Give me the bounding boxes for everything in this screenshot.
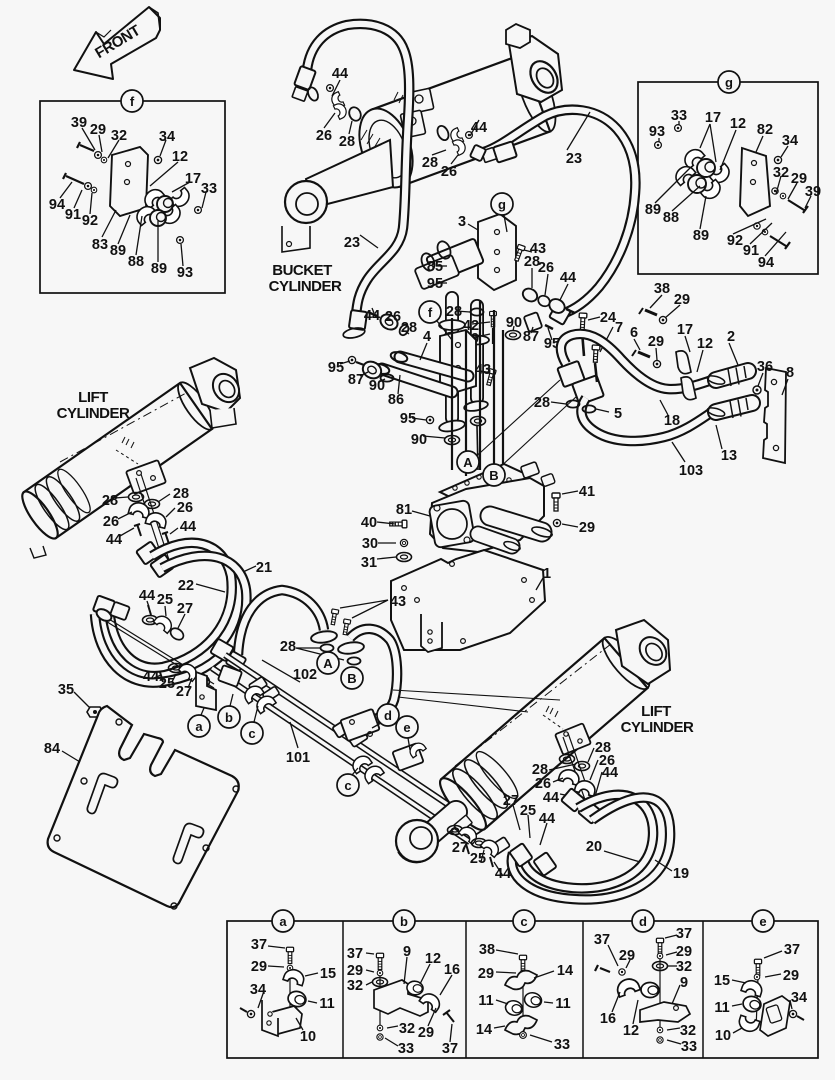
svg-text:29: 29 [674, 292, 690, 308]
svg-text:25: 25 [157, 592, 173, 608]
svg-text:13: 13 [721, 448, 737, 464]
svg-text:91: 91 [743, 243, 759, 259]
svg-text:14: 14 [557, 963, 573, 979]
svg-text:103: 103 [679, 463, 703, 479]
svg-text:87: 87 [523, 329, 539, 345]
svg-text:37: 37 [442, 1041, 458, 1057]
svg-text:31: 31 [361, 555, 377, 571]
svg-text:44: 44 [543, 790, 559, 806]
svg-text:19: 19 [673, 866, 689, 882]
svg-text:89: 89 [151, 261, 167, 277]
svg-text:26: 26 [385, 309, 401, 325]
svg-text:84: 84 [44, 741, 60, 757]
svg-text:25: 25 [159, 676, 175, 692]
svg-text:95: 95 [400, 411, 416, 427]
svg-text:e: e [759, 914, 766, 929]
svg-text:B: B [489, 468, 498, 483]
svg-text:34: 34 [791, 990, 807, 1006]
svg-text:85: 85 [427, 259, 443, 275]
svg-text:101: 101 [286, 750, 310, 766]
svg-text:20: 20 [586, 839, 602, 855]
svg-text:25: 25 [520, 803, 536, 819]
svg-text:3: 3 [458, 214, 466, 230]
svg-text:12: 12 [425, 951, 441, 967]
svg-text:29: 29 [478, 966, 494, 982]
svg-text:30: 30 [362, 536, 378, 552]
svg-text:CYLINDER: CYLINDER [269, 278, 342, 295]
svg-text:83: 83 [92, 237, 108, 253]
svg-text:29: 29 [251, 959, 267, 975]
svg-text:34: 34 [250, 982, 266, 998]
svg-text:11: 11 [555, 996, 570, 1012]
svg-text:32: 32 [399, 1021, 415, 1037]
svg-text:B: B [347, 671, 356, 686]
svg-text:c: c [520, 914, 527, 929]
svg-text:11: 11 [319, 996, 334, 1012]
svg-text:41: 41 [579, 484, 595, 500]
svg-text:89: 89 [110, 243, 126, 259]
svg-text:8: 8 [786, 365, 794, 381]
svg-text:88: 88 [663, 210, 679, 226]
svg-text:44: 44 [471, 120, 487, 136]
svg-text:c: c [248, 726, 255, 741]
svg-text:28: 28 [102, 493, 118, 509]
svg-text:6: 6 [630, 325, 638, 341]
svg-text:43: 43 [475, 362, 491, 378]
svg-text:d: d [639, 914, 647, 929]
svg-text:95: 95 [427, 276, 443, 292]
svg-text:44: 44 [143, 669, 159, 685]
svg-text:29: 29 [648, 334, 664, 350]
svg-text:11: 11 [714, 1000, 729, 1016]
svg-text:CYLINDER: CYLINDER [57, 405, 130, 422]
svg-text:92: 92 [727, 233, 743, 249]
svg-text:17: 17 [185, 171, 201, 187]
svg-text:16: 16 [444, 962, 460, 978]
svg-text:25: 25 [470, 851, 486, 867]
svg-text:17: 17 [705, 110, 721, 126]
svg-text:33: 33 [398, 1041, 414, 1057]
svg-text:38: 38 [654, 281, 670, 297]
svg-text:44: 44 [139, 588, 155, 604]
svg-text:e: e [403, 720, 410, 735]
svg-text:27: 27 [176, 684, 192, 700]
svg-text:37: 37 [251, 937, 267, 953]
svg-text:9: 9 [403, 944, 411, 960]
svg-text:26: 26 [538, 260, 554, 276]
svg-text:86: 86 [388, 392, 404, 408]
svg-text:21: 21 [256, 560, 272, 576]
svg-text:28: 28 [401, 320, 417, 336]
svg-text:28: 28 [339, 134, 355, 150]
svg-text:91: 91 [65, 207, 81, 223]
svg-text:36: 36 [757, 359, 773, 375]
svg-text:87: 87 [348, 372, 364, 388]
svg-text:33: 33 [681, 1039, 697, 1055]
svg-text:32: 32 [680, 1023, 696, 1039]
svg-text:29: 29 [418, 1025, 434, 1041]
svg-text:43: 43 [390, 594, 406, 610]
svg-text:b: b [400, 914, 408, 929]
svg-text:29: 29 [347, 963, 363, 979]
svg-text:A: A [463, 455, 473, 470]
svg-text:12: 12 [172, 149, 188, 165]
svg-text:g: g [725, 75, 733, 90]
svg-text:22: 22 [178, 578, 194, 594]
svg-text:40: 40 [361, 515, 377, 531]
svg-text:28: 28 [446, 304, 462, 320]
svg-text:5: 5 [614, 406, 622, 422]
svg-text:32: 32 [347, 978, 363, 994]
svg-text:10: 10 [715, 1028, 731, 1044]
svg-text:29: 29 [579, 520, 595, 536]
svg-text:27: 27 [503, 793, 519, 809]
svg-text:c: c [344, 778, 351, 793]
svg-text:BUCKET: BUCKET [272, 262, 332, 279]
svg-text:37: 37 [347, 946, 363, 962]
svg-text:90: 90 [369, 378, 385, 394]
svg-text:15: 15 [320, 966, 336, 982]
svg-text:g: g [498, 197, 506, 212]
svg-text:89: 89 [693, 228, 709, 244]
svg-text:34: 34 [159, 129, 175, 145]
svg-text:f: f [428, 305, 433, 320]
svg-text:44: 44 [364, 308, 380, 324]
svg-text:93: 93 [649, 124, 665, 140]
svg-text:12: 12 [730, 116, 746, 132]
svg-text:1: 1 [543, 566, 551, 582]
svg-text:33: 33 [201, 181, 217, 197]
svg-text:44: 44 [106, 532, 122, 548]
svg-text:32: 32 [111, 128, 127, 144]
svg-text:10: 10 [300, 1029, 316, 1045]
svg-text:a: a [195, 719, 203, 734]
svg-text:102: 102 [293, 667, 317, 683]
svg-text:94: 94 [758, 255, 774, 271]
svg-text:88: 88 [128, 254, 144, 270]
svg-text:7: 7 [615, 320, 623, 336]
svg-text:44: 44 [602, 765, 618, 781]
svg-text:27: 27 [177, 601, 193, 617]
svg-text:17: 17 [677, 322, 693, 338]
svg-text:37: 37 [784, 942, 800, 958]
svg-text:37: 37 [676, 926, 692, 942]
svg-text:44: 44 [560, 270, 576, 286]
svg-text:14: 14 [476, 1022, 492, 1038]
svg-text:44: 44 [539, 811, 555, 827]
svg-text:90: 90 [411, 432, 427, 448]
svg-text:CYLINDER: CYLINDER [621, 719, 694, 736]
svg-text:9: 9 [680, 975, 688, 991]
svg-text:4: 4 [423, 329, 431, 345]
svg-text:a: a [279, 914, 287, 929]
svg-text:81: 81 [396, 502, 412, 518]
svg-text:92: 92 [82, 213, 98, 229]
svg-text:29: 29 [90, 122, 106, 138]
svg-text:26: 26 [441, 164, 457, 180]
svg-text:24: 24 [600, 310, 616, 326]
svg-text:89: 89 [645, 202, 661, 218]
svg-text:34: 34 [782, 133, 798, 149]
svg-text:A: A [323, 656, 333, 671]
svg-text:44: 44 [180, 519, 196, 535]
svg-text:33: 33 [554, 1037, 570, 1053]
svg-text:35: 35 [58, 682, 74, 698]
svg-text:38: 38 [479, 942, 495, 958]
svg-text:37: 37 [594, 932, 610, 948]
svg-text:29: 29 [783, 968, 799, 984]
svg-text:b: b [225, 710, 233, 725]
svg-text:94: 94 [49, 197, 65, 213]
svg-text:16: 16 [600, 1011, 616, 1027]
svg-text:82: 82 [757, 122, 773, 138]
svg-text:90: 90 [506, 315, 522, 331]
svg-text:d: d [384, 708, 392, 723]
svg-text:LIFT: LIFT [78, 389, 108, 406]
svg-text:39: 39 [805, 184, 821, 200]
svg-text:32: 32 [676, 959, 692, 975]
svg-text:23: 23 [566, 151, 582, 167]
svg-text:28: 28 [422, 155, 438, 171]
svg-text:29: 29 [619, 948, 635, 964]
svg-text:26: 26 [177, 500, 193, 516]
svg-text:95: 95 [328, 360, 344, 376]
svg-text:12: 12 [623, 1023, 639, 1039]
svg-text:39: 39 [71, 115, 87, 131]
svg-text:18: 18 [664, 413, 680, 429]
svg-text:15: 15 [714, 973, 730, 989]
svg-text:26: 26 [316, 128, 332, 144]
svg-text:23: 23 [344, 235, 360, 251]
svg-text:27: 27 [452, 840, 468, 856]
svg-text:33: 33 [671, 108, 687, 124]
svg-text:2: 2 [727, 329, 735, 345]
svg-text:11: 11 [478, 993, 493, 1009]
svg-text:28: 28 [280, 639, 296, 655]
svg-text:32: 32 [773, 165, 789, 181]
svg-text:f: f [130, 94, 135, 109]
svg-text:26: 26 [103, 514, 119, 530]
svg-text:28: 28 [534, 395, 550, 411]
svg-text:44: 44 [495, 866, 511, 882]
svg-text:44: 44 [332, 66, 348, 82]
svg-text:12: 12 [697, 336, 713, 352]
svg-text:29: 29 [676, 944, 692, 960]
svg-text:LIFT: LIFT [641, 703, 671, 720]
svg-text:93: 93 [177, 265, 193, 281]
